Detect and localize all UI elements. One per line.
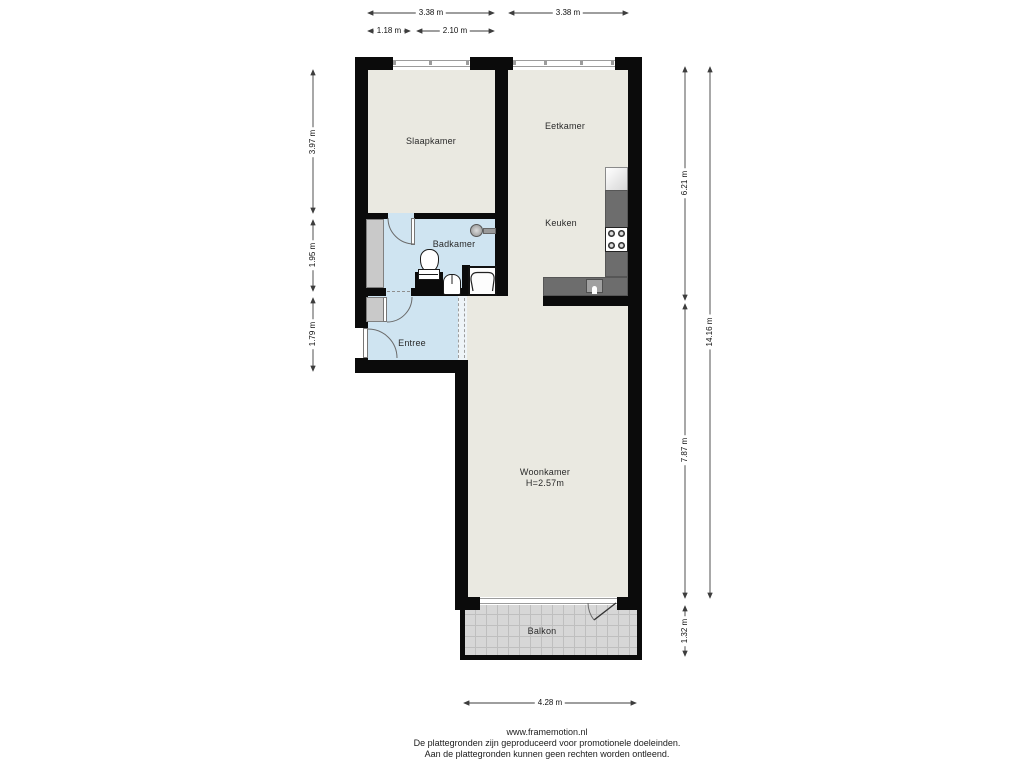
dim-label-bottom: 4.28 m [535, 698, 565, 708]
badkamer-door-arc [388, 218, 414, 244]
dim-label-left-3: 1.79 m [308, 319, 318, 349]
badkamer-label: Badkamer [433, 239, 476, 249]
balkon-label: Balkon [528, 626, 557, 636]
footer-disclaimer: www.framemotion.nl De plattegronden zijn… [414, 727, 681, 760]
keuken-label: Keuken [545, 218, 577, 228]
footer-line-2: Aan de plattegronden kunnen geen rechten… [414, 749, 681, 760]
balkon-door-leaf [594, 603, 616, 620]
dim-label-top-4: 2.10 m [440, 26, 470, 36]
dim-label-top-2: 3.38 m [553, 8, 583, 18]
woonkamer-height-label: H=2.57m [526, 478, 564, 488]
floorplan-canvas: Slaapkamer Eetkamer Keuken Badkamer Entr… [0, 0, 1024, 768]
shower-curtain-glyph [471, 273, 494, 292]
dim-label-right-2: 7.87 m [680, 435, 690, 465]
balkon-door-arc [588, 603, 594, 620]
eetkamer-label: Eetkamer [545, 121, 585, 131]
dim-label-right-1: 6.21 m [680, 168, 690, 198]
footer-line-1: De plattegronden zijn geproduceerd voor … [414, 738, 681, 749]
slaapkamer-label: Slaapkamer [406, 136, 456, 146]
dim-label-left-1: 3.97 m [308, 127, 318, 157]
plan-linework [0, 0, 1024, 768]
front-door-arc [368, 329, 397, 358]
dim-label-right-3: 1.32 m [680, 616, 690, 646]
entree-label: Entree [398, 338, 426, 348]
dim-label-top-1: 3.38 m [416, 8, 446, 18]
dim-label-top-3: 1.18 m [374, 26, 404, 36]
dim-label-right-total: 14.16 m [705, 315, 715, 350]
closet-door-arc [387, 297, 412, 322]
woonkamer-label: Woonkamer [520, 467, 570, 477]
footer-url: www.framemotion.nl [414, 727, 681, 738]
dim-label-left-2: 1.95 m [308, 240, 318, 270]
